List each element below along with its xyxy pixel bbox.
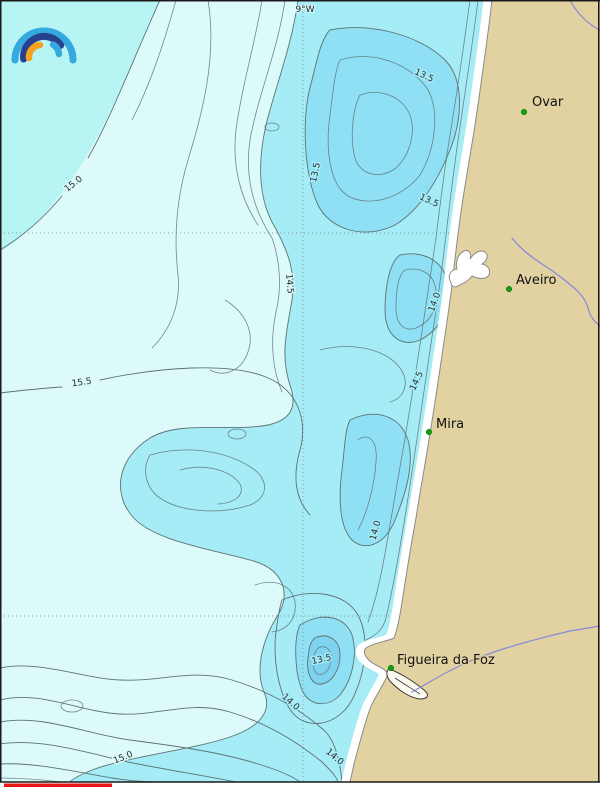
contour-label: 14.5	[283, 273, 295, 294]
colorbar-fragment	[4, 784, 112, 787]
city-label-mira: Mira	[436, 417, 464, 432]
longitude-tick-label: 9°W	[295, 5, 314, 15]
city-label-ovar: Ovar	[532, 95, 564, 110]
map-window: 15.0 13.5 13.5 13.5 14.5 14.0 14.5 15.5 …	[0, 0, 600, 787]
city-dot-ovar	[521, 109, 527, 115]
city-label-aveiro: Aveiro	[516, 273, 556, 288]
city-dot-aveiro	[506, 286, 512, 292]
city-label-figueira: Figueira da Foz	[397, 653, 495, 668]
city-dot-figueira	[388, 665, 394, 671]
map-canvas[interactable]: 15.0 13.5 13.5 13.5 14.5 14.0 14.5 15.5 …	[0, 0, 600, 787]
city-dot-mira	[426, 429, 432, 435]
